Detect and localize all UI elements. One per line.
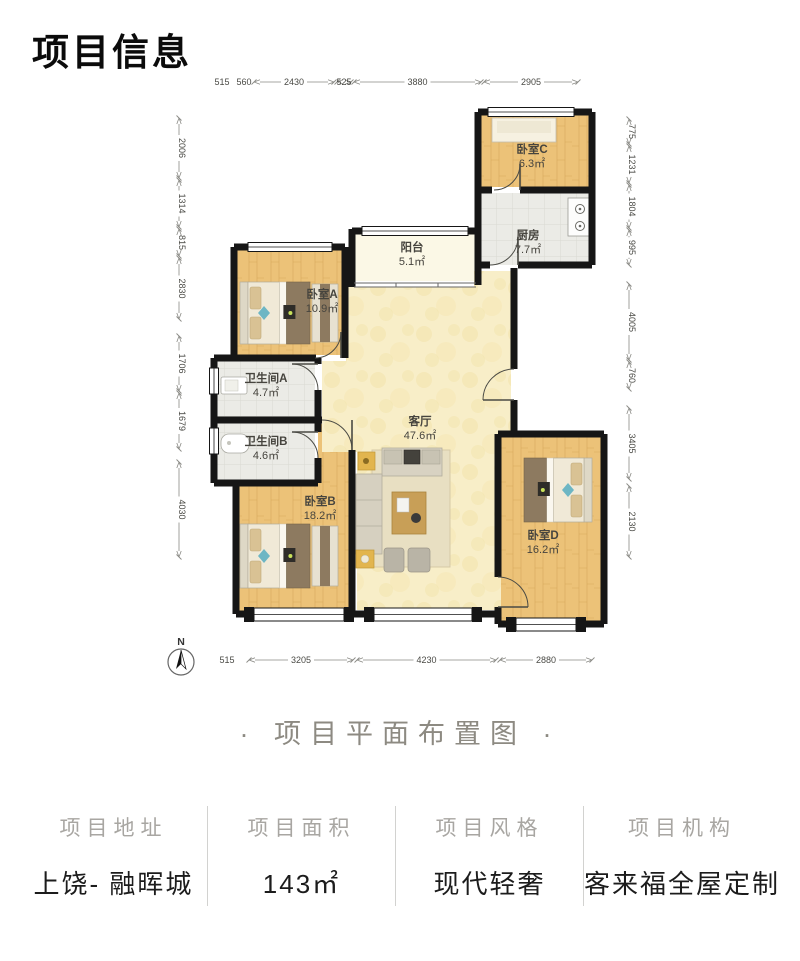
window-cap	[244, 607, 254, 622]
floor-plan: 卧室C6.3㎡厨房7.7㎡阳台5.1㎡卧室A10.9㎡卫生间A4.7㎡卫生间B4…	[150, 60, 650, 690]
dimension-label: 4230	[416, 655, 436, 665]
detail-value: 上饶- 融晖城	[34, 864, 194, 901]
detail-label: 项目面积	[248, 812, 356, 842]
detail-value: 客来福全屋定制	[584, 864, 780, 901]
dimension-label: 815	[177, 235, 187, 250]
dimension-label: 2830	[177, 278, 187, 298]
dimension-label: 3205	[291, 655, 311, 665]
room-area-bathroomA: 4.7㎡	[253, 386, 279, 399]
window-cap	[344, 607, 354, 622]
dimension-label: 2880	[536, 655, 556, 665]
room-label-bathroomA: 卫生间A	[245, 371, 288, 385]
room-label-bedroomA: 卧室A	[306, 287, 337, 301]
room-area-balcony: 5.1㎡	[399, 255, 425, 268]
detail-label: 项目风格	[436, 812, 544, 842]
floor-plan-figure: 卧室C6.3㎡厨房7.7㎡阳台5.1㎡卧室A10.9㎡卫生间A4.7㎡卫生间B4…	[150, 60, 650, 690]
detail-column-agency: 项目机构 客来福全屋定制	[583, 806, 780, 906]
detail-label: 项目地址	[60, 812, 168, 842]
window-cap	[576, 617, 586, 632]
dimension-label: 1679	[177, 411, 187, 431]
room-label-bedroomB: 卧室B	[304, 494, 335, 508]
plan-caption: · 项目平面布置图 ·	[0, 712, 800, 751]
detail-column-address: 项目地址 上饶- 融晖城	[20, 806, 207, 906]
room-area-bedroomC: 6.3㎡	[519, 157, 545, 170]
window-cap	[472, 607, 482, 622]
detail-value: 现代轻奢	[433, 864, 545, 901]
bed	[524, 458, 592, 522]
room-area-bedroomD: 16.2㎡	[527, 543, 559, 556]
dimension-label: 1706	[177, 353, 187, 373]
dimension-label: 4030	[177, 499, 187, 519]
window-cap	[506, 617, 516, 632]
room-area-kitchen: 7.7㎡	[515, 243, 541, 256]
dimension-label: 525	[336, 77, 351, 87]
ottoman	[384, 548, 404, 572]
dimension-label: 995	[627, 240, 637, 255]
dimension-label: 560	[236, 77, 251, 87]
detail-column-style: 项目风格 现代轻奢	[395, 806, 583, 906]
bed	[240, 282, 310, 344]
bed	[240, 524, 310, 588]
ottoman	[408, 548, 430, 572]
room-label-balcony: 阳台	[401, 240, 424, 254]
dimension-label: 515	[214, 77, 229, 87]
project-info-page: 项目信息 卧室C6.3㎡厨房7.7㎡阳台5.1㎡卧室A10.9㎡卫生间A4.7㎡…	[0, 0, 800, 961]
room-label-bedroomC: 卧室C	[516, 142, 547, 156]
detail-label: 项目机构	[628, 812, 736, 842]
room-label-kitchen: 厨房	[517, 228, 540, 242]
room-label-bathroomB: 卫生间B	[245, 434, 288, 448]
dimension-label: 1314	[177, 193, 187, 213]
dimension-label: 2006	[177, 138, 187, 158]
dimension-label: 2430	[284, 77, 304, 87]
dimension-label: 1231	[627, 154, 637, 174]
dimension-label: 1804	[627, 196, 637, 216]
project-details: 项目地址 上饶- 融晖城 项目面积 143㎡ 项目风格 现代轻奢 项目机构 客来…	[20, 806, 780, 906]
room-area-livingroom: 47.6㎡	[404, 429, 436, 442]
room-label-bedroomD: 卧室D	[527, 528, 558, 542]
wardrobe-panel	[320, 526, 330, 586]
room-area-bedroomA: 10.9㎡	[306, 302, 338, 315]
dimension-label: 760	[627, 368, 637, 383]
dimension-label: 775	[627, 124, 637, 139]
room-label-livingroom: 客厅	[408, 414, 432, 428]
window-cap	[364, 607, 374, 622]
compass-icon: N	[168, 636, 194, 675]
dimension-label: 3405	[627, 433, 637, 453]
dimension-label: 2905	[521, 77, 541, 87]
chaise-sofa	[356, 474, 382, 554]
room-area-bathroomB: 4.6㎡	[253, 449, 279, 462]
dimension-label: 515	[219, 655, 234, 665]
dimension-label: 3880	[407, 77, 427, 87]
bed-pillow	[497, 121, 551, 133]
detail-column-area: 项目面积 143㎡	[207, 806, 395, 906]
detail-value: 143㎡	[263, 864, 340, 901]
dimension-label: 2130	[627, 511, 637, 531]
compass-north-label: N	[177, 636, 185, 648]
dimension-label: 4005	[627, 312, 637, 332]
room-area-bedroomB: 18.2㎡	[304, 509, 336, 522]
